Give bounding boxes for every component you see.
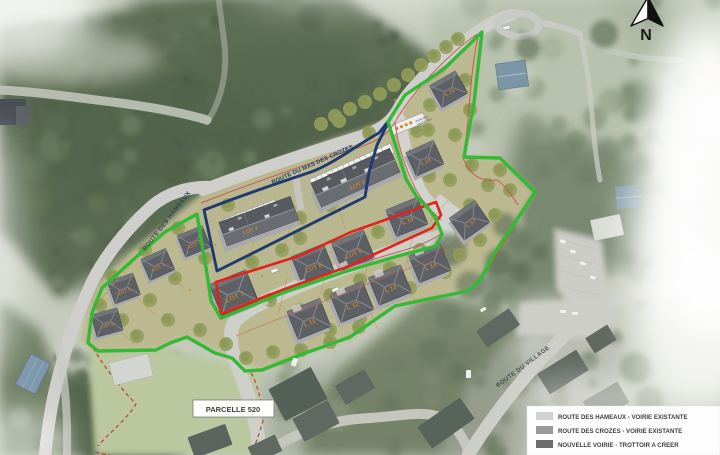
svg-text:NOUVELLE VOIRIE - TROTTOIR A C: NOUVELLE VOIRIE - TROTTOIR A CREER — [558, 442, 679, 449]
svg-text:N: N — [640, 27, 652, 44]
svg-text:ROUTE DES HAMEAUX - VOIRIE EXI: ROUTE DES HAMEAUX - VOIRIE EXISTANTE — [558, 414, 688, 421]
svg-text:ROUTE DES CROZES - VOIRIE EXIS: ROUTE DES CROZES - VOIRIE EXISTANTE — [558, 428, 682, 435]
